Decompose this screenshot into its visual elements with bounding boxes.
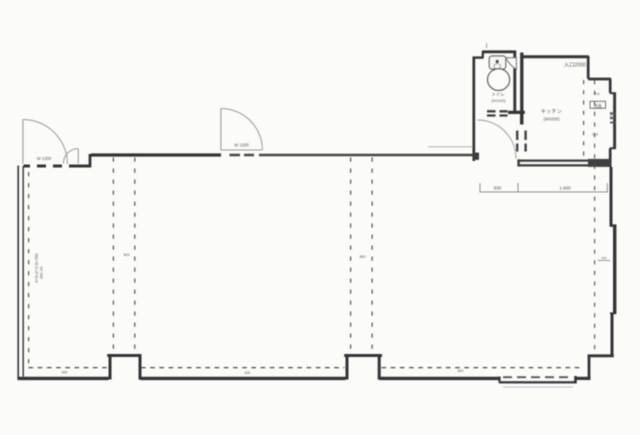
svg-text:4+3=2+2.5=700: 4+3=2+2.5=700 <box>34 253 39 283</box>
svg-text:800: 800 <box>360 255 366 259</box>
svg-text:800: 800 <box>124 253 130 257</box>
svg-text:2L6: 2L6 <box>594 92 600 96</box>
svg-text:キッチン: キッチン <box>541 109 563 115</box>
svg-text:(W1420): (W1420) <box>491 99 505 103</box>
svg-text:300: 300 <box>601 256 606 260</box>
svg-text:W 1200: W 1200 <box>37 156 52 161</box>
svg-text:600: 600 <box>245 371 251 375</box>
svg-text:830: 830 <box>494 186 502 191</box>
svg-text:600: 600 <box>62 370 68 374</box>
svg-text:W900: W900 <box>609 112 613 120</box>
svg-text:(W4200): (W4200) <box>543 117 560 122</box>
svg-text:W 1200: W 1200 <box>234 143 249 148</box>
svg-text:600: 600 <box>458 369 464 373</box>
svg-text:トイレ: トイレ <box>491 92 504 97</box>
svg-text:洗面: 洗面 <box>594 102 602 109</box>
svg-text:(660.16): (660.16) <box>40 266 44 279</box>
svg-text:入口2000: 入口2000 <box>564 61 586 68</box>
svg-text:1.900: 1.900 <box>559 186 571 191</box>
svg-text:2L6: 2L6 <box>592 132 598 136</box>
